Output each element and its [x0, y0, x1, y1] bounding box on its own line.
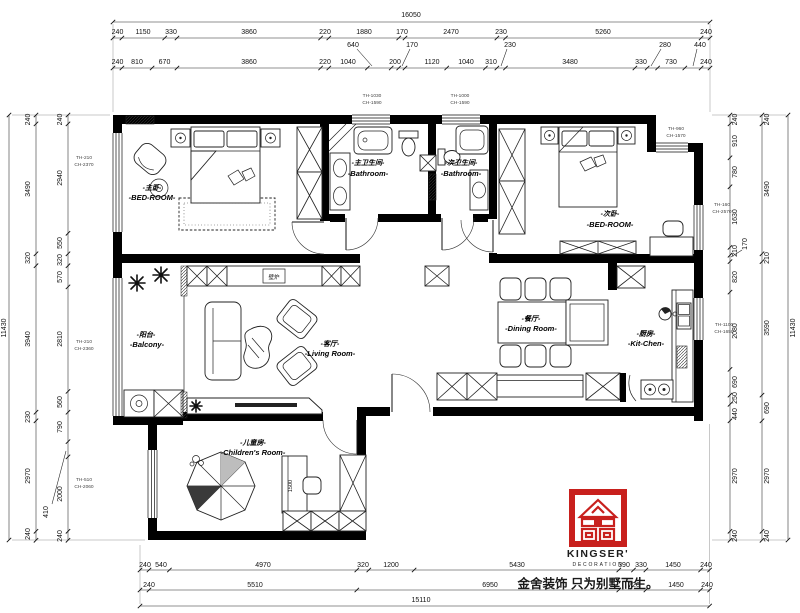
dim: 250: [732, 392, 739, 404]
dim: 3480: [562, 59, 578, 66]
floor-plan-page: 16050 240 1150 330 3860 220 1880 170 247…: [0, 0, 800, 613]
note: CH-1650: [714, 329, 734, 335]
note: CH-2360: [74, 346, 94, 352]
note: TH-1000: [451, 93, 470, 99]
dim: 4970: [255, 562, 271, 569]
dim: 240: [701, 582, 713, 589]
dim: 240: [112, 59, 124, 66]
dim: 1120: [424, 59, 439, 66]
dim: 200: [389, 59, 401, 66]
dim: 220: [319, 59, 331, 66]
dim: 2470: [443, 29, 459, 36]
dim: 230: [25, 411, 32, 423]
label-second-bathroom-en: -Bathroom-: [441, 169, 482, 178]
brand-name: KINGSER': [567, 548, 629, 560]
note: CH-1590: [450, 100, 470, 106]
label-desk-width: 1500: [288, 480, 294, 492]
dim-left-total: 11430: [1, 318, 8, 337]
label-master-bedroom-en: -BED-ROOM-: [129, 193, 176, 202]
dim: 210: [732, 245, 739, 257]
dim: 570: [57, 271, 64, 283]
dim: 1040: [458, 59, 474, 66]
dim-bottom-total: 15110: [412, 597, 431, 604]
dim: 240: [764, 530, 771, 542]
dim: 730: [665, 59, 677, 66]
note: CH-1590: [362, 100, 382, 106]
note: CH-2370: [74, 162, 94, 168]
dim-right-total: 11430: [790, 318, 797, 337]
dim-leader: 170: [406, 42, 418, 49]
dim: 3490: [764, 181, 771, 197]
dim: 1040: [340, 59, 356, 66]
label-second-bedroom-cn: -次卧-: [601, 209, 620, 218]
label-master-bathroom-cn: -主卫生间-: [352, 158, 385, 167]
note: TH-510: [76, 477, 92, 483]
dim: 210: [764, 252, 771, 264]
dim: 330: [635, 59, 647, 66]
dim: 240: [700, 29, 712, 36]
dim: 240: [732, 114, 739, 126]
dim-leader: 410: [43, 506, 50, 518]
dim: 2810: [57, 331, 64, 347]
dim: 240: [732, 530, 739, 542]
dim: 1200: [383, 562, 399, 569]
note: TH-1100: [715, 322, 734, 328]
label-fireplace: 壁炉: [268, 273, 280, 281]
label-living-room-cn: -客厅-: [321, 339, 340, 348]
note: TH-160: [714, 202, 730, 208]
note: TH-1030: [363, 93, 382, 99]
dim: 3860: [241, 29, 257, 36]
note: CH-2060: [74, 484, 94, 490]
note: TH-210: [76, 155, 92, 161]
dim: 690: [764, 402, 771, 414]
dim: 810: [131, 59, 143, 66]
dim: 240: [57, 114, 64, 126]
dim-leader: 230: [504, 42, 516, 49]
dim: 3940: [25, 331, 32, 347]
floor-plan-svg: 16050 240 1150 330 3860 220 1880 170 247…: [0, 0, 800, 613]
label-dining-room-en: -Dining Room-: [505, 324, 557, 333]
dim-leader: 640: [347, 42, 359, 49]
label-dining-room-cn: -餐厅-: [522, 314, 541, 323]
dim: 550: [57, 237, 64, 249]
dim: 790: [57, 421, 64, 433]
label-living-room-en: -Living Room-: [305, 349, 356, 358]
dim: 2000: [57, 486, 64, 502]
dim: 1450: [665, 562, 681, 569]
dim: 240: [700, 562, 712, 569]
dim: 560: [57, 396, 64, 408]
dim: 910: [732, 135, 739, 147]
dim: 230: [495, 29, 507, 36]
dim: 3590: [764, 320, 771, 336]
dim: 5260: [595, 29, 611, 36]
dim: 240: [25, 528, 32, 540]
label-second-bedroom-en: -BED-ROOM-: [587, 220, 634, 229]
dim: 690: [732, 376, 739, 388]
note: CH-2570: [712, 209, 732, 215]
dim: 440: [732, 408, 739, 420]
dim: 780: [732, 166, 739, 178]
dim: 240: [57, 530, 64, 542]
dim-leader: 280: [659, 42, 671, 49]
dim: 240: [25, 114, 32, 126]
dim: 6950: [482, 582, 498, 589]
dim: 330: [165, 29, 177, 36]
label-kitchen-cn: -厨房-: [637, 329, 656, 338]
note: TH-210: [76, 339, 92, 345]
label-master-bedroom-cn: -主卧-: [143, 183, 162, 192]
brand-subtitle: DECORATION: [573, 562, 624, 568]
dim: 2970: [764, 468, 771, 484]
label-kitchen-en: -Kit-Chen-: [628, 339, 665, 348]
dim: 310: [485, 59, 497, 66]
dim: 240: [764, 114, 771, 126]
dim: 2970: [732, 468, 739, 484]
dim-top-total: 16050: [401, 12, 421, 19]
dim: 330: [635, 562, 647, 569]
dim: 2970: [25, 468, 32, 484]
dim: 5430: [509, 562, 525, 569]
dim: 240: [139, 562, 151, 569]
dim-leader: 440: [694, 42, 706, 49]
dim: 3490: [25, 181, 32, 197]
label-childrens-room-cn: -儿童房-: [240, 438, 266, 447]
label-balcony-cn: -阳台-: [137, 330, 156, 339]
dim: 5510: [247, 582, 263, 589]
dim: 320: [357, 562, 369, 569]
label-second-bathroom-cn: -次卫生间-: [445, 158, 478, 167]
dim: 320: [25, 252, 32, 264]
dim: 170: [396, 29, 408, 36]
dim: 1880: [356, 29, 372, 36]
dim: 240: [143, 582, 155, 589]
dim-leader: 170: [742, 238, 749, 250]
brand-slogan: 金舍装饰 只为别墅而生。: [517, 576, 659, 591]
dim: 240: [700, 59, 712, 66]
dim: 3860: [241, 59, 257, 66]
note: CH-1570: [666, 133, 686, 139]
note: TH-960: [668, 126, 684, 132]
dim: 540: [155, 562, 167, 569]
dim: 1450: [668, 582, 684, 589]
dim: 240: [112, 29, 124, 36]
label-master-bathroom-en: -Bathroom-: [348, 169, 389, 178]
dim: 670: [159, 59, 171, 66]
label-childrens-room-en: -Children's Room-: [221, 448, 286, 457]
dim: 2940: [57, 170, 64, 186]
dim: 320: [57, 254, 64, 266]
dim: 1630: [732, 209, 739, 225]
dim: 220: [319, 29, 331, 36]
label-balcony-en: -Balcony-: [130, 340, 165, 349]
dim: 820: [732, 271, 739, 283]
dim: 1150: [135, 29, 150, 36]
